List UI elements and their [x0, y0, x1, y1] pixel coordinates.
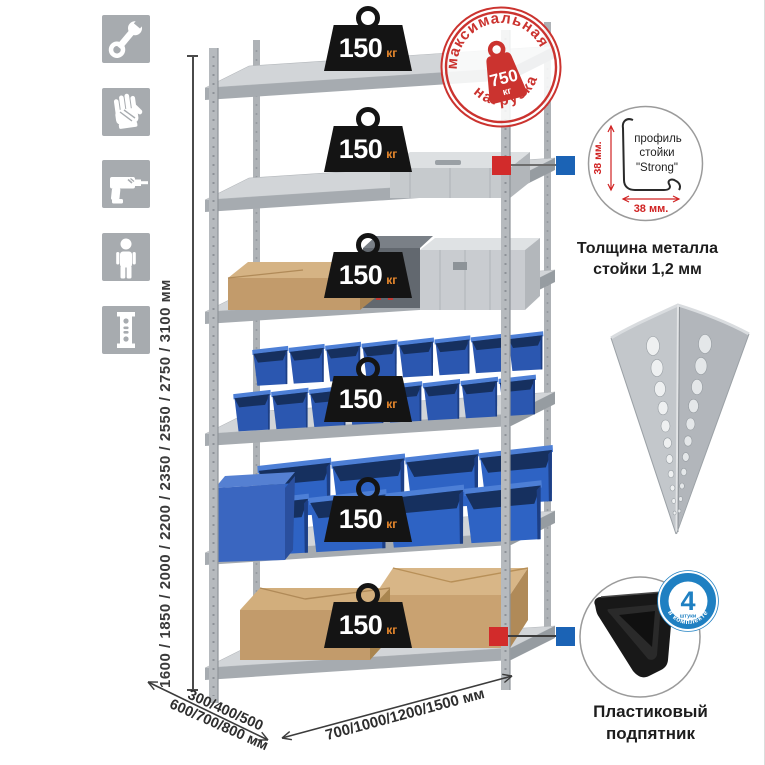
height-dimension-label: 1600 / 1850 / 2000 / 2200 / 2350 / 2550 …: [157, 58, 174, 688]
foot-caption-line-1: Пластиковый: [573, 701, 728, 723]
wrench-icon: [102, 15, 150, 63]
icon-tile-person: [102, 233, 150, 281]
height-dimension-line: [192, 56, 194, 690]
shelf-load-badge-2: 150кг: [324, 107, 412, 172]
width-dimension-line: [272, 664, 522, 749]
profile-vertical-dim-label: 38 мм.: [592, 141, 604, 174]
icon-tile-gloves: [102, 88, 150, 136]
icon-tile-post-profile: [102, 306, 150, 354]
callout-red-marker-lower: [489, 627, 508, 646]
load-value: 150: [339, 384, 383, 415]
callout-line-upper: [506, 164, 560, 166]
foot-caption: Пластиковый подпятник: [573, 701, 728, 745]
load-unit: кг: [386, 147, 397, 161]
callout-blue-marker-upper: [556, 156, 575, 175]
gloves-icon: [102, 88, 150, 136]
callout-line-lower: [504, 635, 560, 637]
profile-detail-circle: 38 мм. 38 мм. профиль стойки "Strong": [586, 104, 706, 224]
max-load-stamp: максимальная нагрузка 750 кг: [436, 2, 566, 132]
load-unit: кг: [386, 46, 397, 60]
metal-thickness-note: Толщина металла стойки 1,2 мм: [570, 238, 725, 280]
profile-horizontal-dim-label: 38 мм.: [634, 203, 669, 215]
callout-blue-marker-lower: [556, 627, 575, 646]
load-value: 150: [339, 33, 383, 64]
load-value: 150: [339, 260, 383, 291]
quantity-value: 4: [680, 586, 695, 616]
load-unit: кг: [386, 623, 397, 637]
profile-caption-1: профиль: [634, 133, 682, 145]
quantity-badge: 4 штуки в комплекте: [658, 571, 718, 631]
profile-caption-3: "Strong": [636, 162, 678, 174]
large-tote-left: [215, 472, 295, 562]
load-value: 150: [339, 504, 383, 535]
load-unit: кг: [386, 397, 397, 411]
product-infographic: 1600 / 1850 / 2000 / 2200 / 2350 / 2550 …: [0, 0, 765, 765]
icon-tile-drill: [102, 160, 150, 208]
thickness-line-1: Толщина металла: [570, 238, 725, 259]
icon-tile-wrench: [102, 15, 150, 63]
post-profile-icon: [102, 306, 150, 354]
shelf-load-badge-3: 150кг: [324, 233, 412, 298]
shelf-load-badge-1: 150кг: [324, 6, 412, 71]
profile-caption-2: стойки: [639, 147, 674, 159]
shelf-load-badge-4: 150кг: [324, 357, 412, 422]
angle-post-photo: [597, 294, 765, 544]
load-unit: кг: [386, 273, 397, 287]
shelf-load-badge-5: 150кг: [324, 477, 412, 542]
thickness-line-2: стойки 1,2 мм: [570, 259, 725, 280]
load-value: 150: [339, 610, 383, 641]
load-unit: кг: [386, 517, 397, 531]
load-value: 150: [339, 134, 383, 165]
drill-icon: [102, 160, 150, 208]
person-icon: [102, 233, 150, 281]
shelf-load-badge-6: 150кг: [324, 583, 412, 648]
foot-caption-line-2: подпятник: [573, 723, 728, 745]
callout-red-marker-upper: [492, 156, 511, 175]
